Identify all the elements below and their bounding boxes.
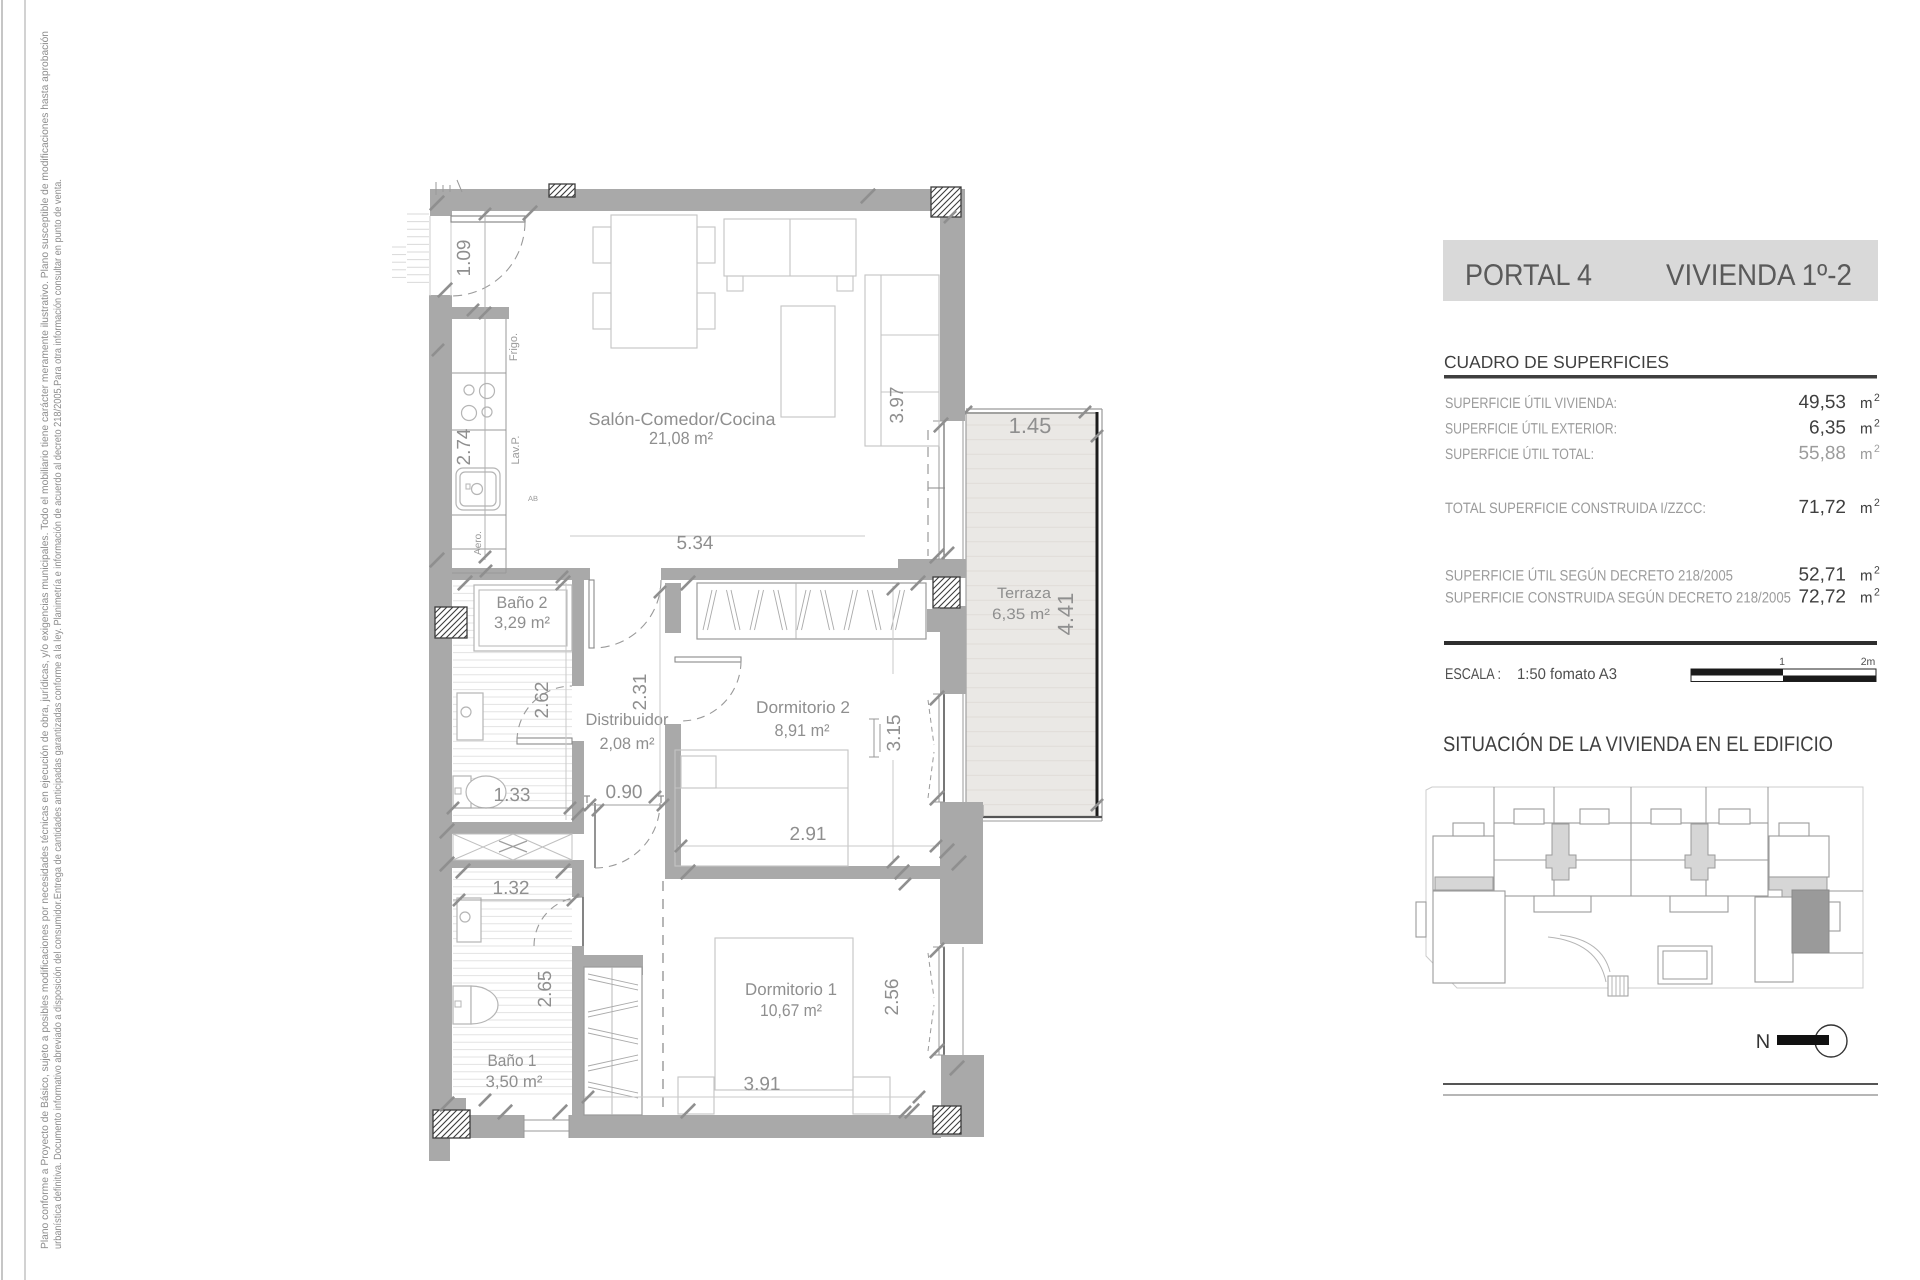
svg-text:2.91: 2.91 — [790, 824, 827, 845]
svg-text:3.97: 3.97 — [887, 387, 908, 424]
svg-text:1.32: 1.32 — [493, 878, 530, 899]
svg-text:1.33: 1.33 — [494, 785, 531, 806]
svg-text:Dormitorio 2: Dormitorio 2 — [756, 698, 850, 717]
svg-text:2m: 2m — [1861, 656, 1876, 668]
svg-text:2.62: 2.62 — [532, 682, 553, 719]
svg-text:3.91: 3.91 — [744, 1074, 781, 1095]
svg-text:2: 2 — [1874, 587, 1880, 599]
svg-text:5.34: 5.34 — [677, 533, 714, 554]
svg-text:52,71: 52,71 — [1798, 565, 1846, 586]
svg-text:Frigo.: Frigo. — [508, 333, 520, 361]
svg-text:m: m — [1860, 568, 1873, 585]
svg-text:2: 2 — [1874, 418, 1880, 430]
svg-text:1:50 fomato A3: 1:50 fomato A3 — [1517, 666, 1617, 683]
svg-text:Dormitorio 1: Dormitorio 1 — [745, 980, 837, 999]
svg-text:Plano conforme a Proyecto de B: Plano conforme a Proyecto de Básico, suj… — [40, 31, 51, 1249]
svg-text:Lav.P.: Lav.P. — [510, 436, 522, 465]
svg-text:4.41: 4.41 — [1053, 593, 1078, 636]
svg-text:SUPERFICIE ÚTIL TOTAL:: SUPERFICIE ÚTIL TOTAL: — [1445, 445, 1594, 463]
svg-text:m: m — [1860, 421, 1873, 438]
svg-text:PORTAL 4: PORTAL 4 — [1465, 259, 1592, 292]
svg-text:TOTAL SUPERFICIE CONSTRUIDA I/: TOTAL SUPERFICIE CONSTRUIDA I/ZZCC: — [1445, 500, 1706, 517]
svg-text:SUPERFICIE ÚTIL SEGÚN DECRETO: SUPERFICIE ÚTIL SEGÚN DECRETO 218/2005 — [1445, 567, 1733, 585]
svg-text:0.90: 0.90 — [606, 782, 643, 803]
svg-text:3,29 m²: 3,29 m² — [494, 614, 551, 632]
svg-text:m: m — [1860, 446, 1873, 463]
svg-text:Aero.: Aero. — [473, 531, 484, 555]
svg-text:10,67 m²: 10,67 m² — [760, 1001, 822, 1020]
svg-text:1.45: 1.45 — [1009, 413, 1052, 438]
svg-text:SUPERFICIE ÚTIL VIVIENDA:: SUPERFICIE ÚTIL VIVIENDA: — [1445, 394, 1617, 412]
svg-text:6,35: 6,35 — [1809, 418, 1846, 439]
svg-text:VIVIENDA 1º-2: VIVIENDA 1º-2 — [1666, 259, 1852, 292]
svg-text:2.74: 2.74 — [454, 428, 475, 465]
svg-text:2.31: 2.31 — [630, 674, 651, 711]
svg-text:SUPERFICIE ÚTIL EXTERIOR:: SUPERFICIE ÚTIL EXTERIOR: — [1445, 420, 1617, 438]
svg-text:2: 2 — [1874, 392, 1880, 404]
svg-text:2: 2 — [1874, 443, 1880, 455]
svg-text:71,72: 71,72 — [1798, 497, 1846, 518]
svg-text:m: m — [1860, 590, 1873, 607]
svg-text:3.15: 3.15 — [884, 715, 905, 752]
svg-text:AB: AB — [528, 494, 538, 503]
svg-text:CUADRO DE SUPERFICIES: CUADRO DE SUPERFICIES — [1444, 352, 1669, 372]
svg-text:Baño 2: Baño 2 — [497, 594, 548, 612]
svg-text:Terraza: Terraza — [997, 585, 1052, 602]
svg-text:2,08 m²: 2,08 m² — [600, 735, 655, 753]
svg-text:Baño 1: Baño 1 — [488, 1052, 537, 1070]
svg-text:SITUACIÓN DE LA VIVIENDA EN EL: SITUACIÓN DE LA VIVIENDA EN EL EDIFICIO — [1443, 732, 1833, 756]
svg-text:ESCALA :: ESCALA : — [1445, 666, 1501, 683]
svg-text:49,53: 49,53 — [1798, 392, 1846, 413]
svg-text:2: 2 — [1874, 565, 1880, 577]
svg-text:2: 2 — [1874, 497, 1880, 509]
svg-text:1.09: 1.09 — [454, 240, 475, 277]
svg-text:72,72: 72,72 — [1798, 587, 1846, 608]
svg-text:SUPERFICIE CONSTRUIDA SEGÚN DE: SUPERFICIE CONSTRUIDA SEGÚN DECRETO 218/… — [1445, 589, 1791, 607]
svg-text:N: N — [1756, 1031, 1770, 1053]
svg-text:3,50 m²: 3,50 m² — [486, 1073, 544, 1091]
svg-text:1: 1 — [1779, 656, 1785, 668]
svg-text:2.65: 2.65 — [535, 971, 556, 1008]
svg-text:Salón-Comedor/Cocina: Salón-Comedor/Cocina — [589, 409, 776, 429]
svg-text:m: m — [1860, 500, 1873, 517]
svg-text:m: m — [1860, 395, 1873, 412]
svg-text:55,88: 55,88 — [1798, 443, 1846, 464]
svg-text:6,35 m²: 6,35 m² — [992, 606, 1050, 623]
svg-text:2.56: 2.56 — [882, 979, 903, 1016]
svg-text:urbanística definitiva. Docume: urbanística definitiva. Documento inform… — [53, 179, 64, 1249]
svg-text:8,91 m²: 8,91 m² — [775, 721, 830, 740]
svg-text:Distribuidor: Distribuidor — [586, 711, 669, 729]
svg-text:21,08 m²: 21,08 m² — [649, 428, 713, 448]
